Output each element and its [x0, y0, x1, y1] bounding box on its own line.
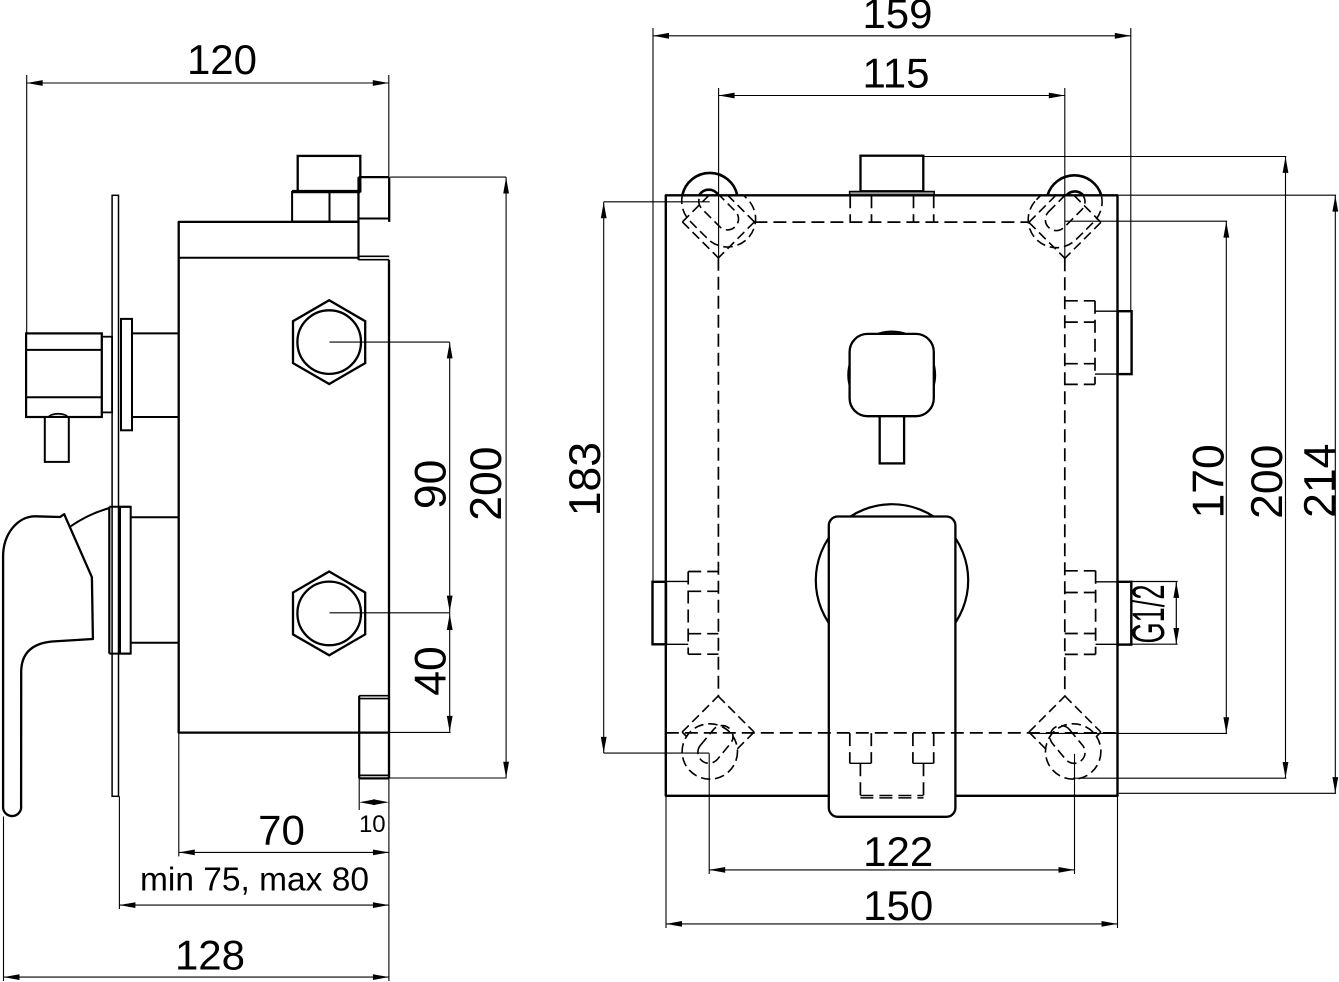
svg-text:122: 122 [863, 828, 933, 875]
svg-text:128: 128 [175, 931, 245, 978]
svg-text:200: 200 [1243, 445, 1292, 519]
svg-text:120: 120 [187, 36, 257, 83]
svg-text:40: 40 [407, 646, 456, 696]
svg-text:min 75, max 80: min 75, max 80 [140, 862, 369, 899]
svg-text:170: 170 [1184, 444, 1233, 518]
svg-text:10: 10 [359, 811, 386, 838]
svg-text:G1/2: G1/2 [1123, 585, 1174, 644]
svg-text:70: 70 [258, 807, 305, 854]
svg-text:183: 183 [561, 442, 610, 516]
svg-text:115: 115 [863, 49, 930, 96]
svg-text:214: 214 [1296, 444, 1339, 518]
svg-text:90: 90 [407, 460, 456, 510]
svg-text:159: 159 [862, 0, 932, 37]
svg-text:200: 200 [462, 446, 511, 520]
svg-text:150: 150 [863, 882, 933, 929]
